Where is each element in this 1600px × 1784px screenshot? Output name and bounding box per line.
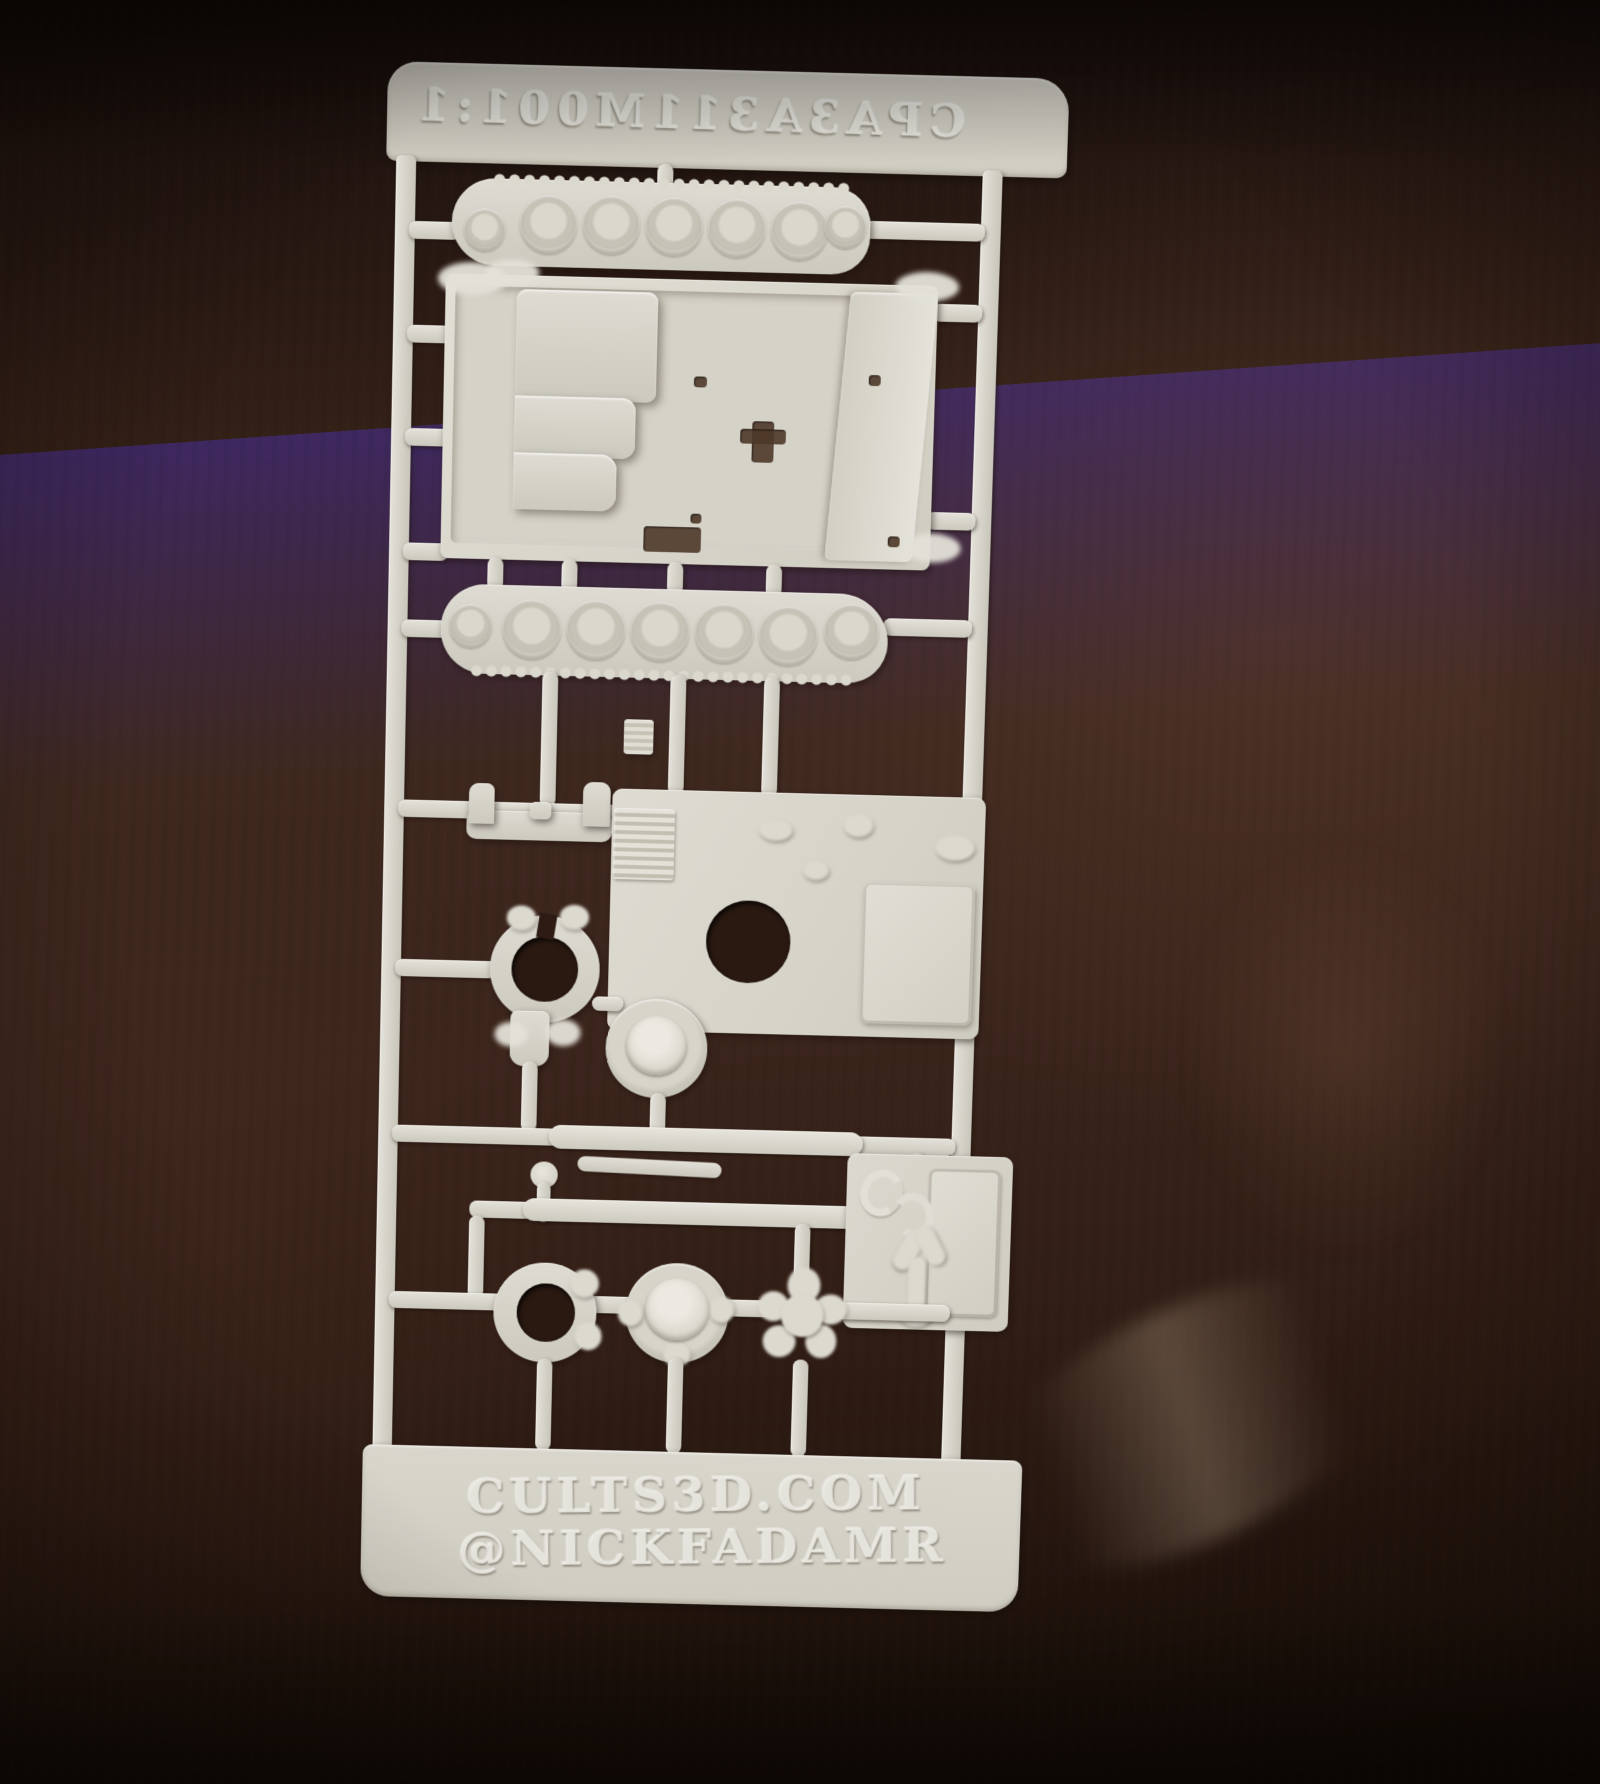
- road-wheel: [566, 599, 627, 661]
- star-cluster: [752, 1268, 852, 1364]
- runner-star-down: [790, 1359, 808, 1457]
- runner-track-to-rail-right: [863, 221, 985, 242]
- rod-long: [549, 1125, 863, 1157]
- runner-rodrow-down-left: [468, 1215, 485, 1298]
- bracket-center-nub: [530, 802, 552, 820]
- bracket-prong-right: [582, 782, 611, 827]
- road-wheel: [707, 198, 766, 259]
- soft-light-patch: [1180, 840, 1510, 1260]
- bracket-prong-left: [468, 783, 494, 824]
- trim-vane-bracket: [466, 783, 613, 846]
- track-teeth-lower: [470, 664, 855, 687]
- floor-hole-dot: [888, 536, 900, 547]
- hatch-dome-small: [604, 998, 708, 1100]
- engine-bay-step-2: [513, 452, 617, 511]
- road-wheel: [582, 195, 641, 256]
- floor-slot: [643, 526, 701, 553]
- footer-handle-embossed-text: @NICKFADAMR: [457, 1518, 948, 1577]
- idler-wheel: [448, 603, 492, 649]
- scale-title-embossed-text: 1:100 M113 A3 APC: [411, 78, 966, 148]
- brim-scallop: [709, 1296, 735, 1323]
- runner-hull-to-rail-2: [926, 512, 976, 531]
- footer-site-embossed-text: CULTS3D.COM: [466, 1465, 926, 1524]
- idler-wheel: [824, 205, 867, 250]
- support-fuzz: [903, 533, 961, 564]
- deck-fitting: [759, 819, 793, 841]
- road-wheel: [758, 605, 819, 667]
- road-wheel: [501, 599, 562, 661]
- engine-bay-step-1: [514, 395, 636, 459]
- deck-fitting: [935, 835, 975, 861]
- runner-hull-to-rail-1: [932, 304, 982, 323]
- floor-hole-dot: [690, 514, 701, 524]
- mg-ring-mount: [489, 914, 601, 1024]
- ring-lump: [570, 1269, 600, 1298]
- engine-grille: [613, 808, 676, 881]
- runner-track2-down-3: [761, 677, 780, 797]
- runner-track2-down-2: [668, 675, 687, 795]
- runner-rail-to-ring-mount: [395, 959, 497, 979]
- lower-hull-tub: [440, 273, 938, 570]
- rod-short: [577, 1156, 722, 1179]
- road-wheel: [630, 601, 691, 663]
- runner-dome-large-down: [666, 1358, 684, 1454]
- ring-open-lower: [492, 1261, 597, 1363]
- road-wheel: [694, 603, 755, 665]
- deck-fitting: [803, 861, 829, 881]
- cargo-hatch-raised: [859, 882, 975, 1026]
- photo-stage: 1:100 M113 A3 APC: [0, 0, 1600, 1784]
- sprue-title-banner: 1:100 M113 A3 APC: [386, 61, 1070, 178]
- deck-fitting: [843, 814, 873, 838]
- sprue-footer-banner: CULTS3D.COM @NICKFADAMR: [360, 1444, 1022, 1612]
- road-wheel: [644, 196, 703, 257]
- floor-t-slot-horizontal: [740, 429, 786, 445]
- ring-lump: [574, 1322, 602, 1351]
- road-wheel: [770, 201, 829, 262]
- runner-track2-to-rail-right: [883, 618, 972, 638]
- support-fuzz: [545, 1019, 581, 1047]
- grille-block-small: [623, 719, 653, 755]
- runner-ring-lower-down: [535, 1359, 553, 1451]
- track-run-lower: [440, 583, 889, 684]
- road-wheel: [519, 194, 578, 255]
- engine-bay-block: [515, 289, 659, 403]
- runner-ring-tab-down: [521, 1061, 538, 1132]
- floor-hole-dot: [694, 376, 707, 387]
- model-kit-sprue: 1:100 M113 A3 APC: [360, 61, 1070, 1612]
- ring-prong-right: [559, 904, 589, 930]
- floor-hole-dot: [869, 375, 881, 386]
- hatch-dome-large: [624, 1262, 729, 1364]
- drive-sprocket: [463, 207, 506, 252]
- drive-sprocket: [823, 603, 880, 661]
- turret-hatch-opening: [705, 900, 791, 984]
